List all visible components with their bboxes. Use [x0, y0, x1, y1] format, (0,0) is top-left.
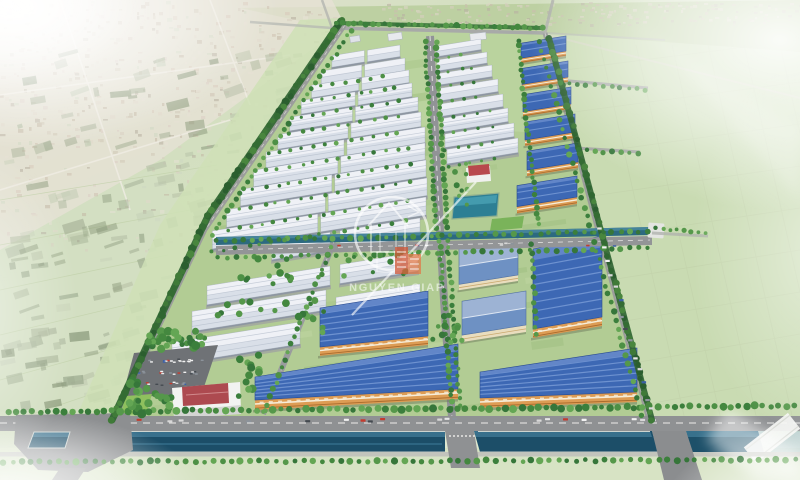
- svg-text:NGUYEN GIAP: NGUYEN GIAP: [349, 282, 445, 294]
